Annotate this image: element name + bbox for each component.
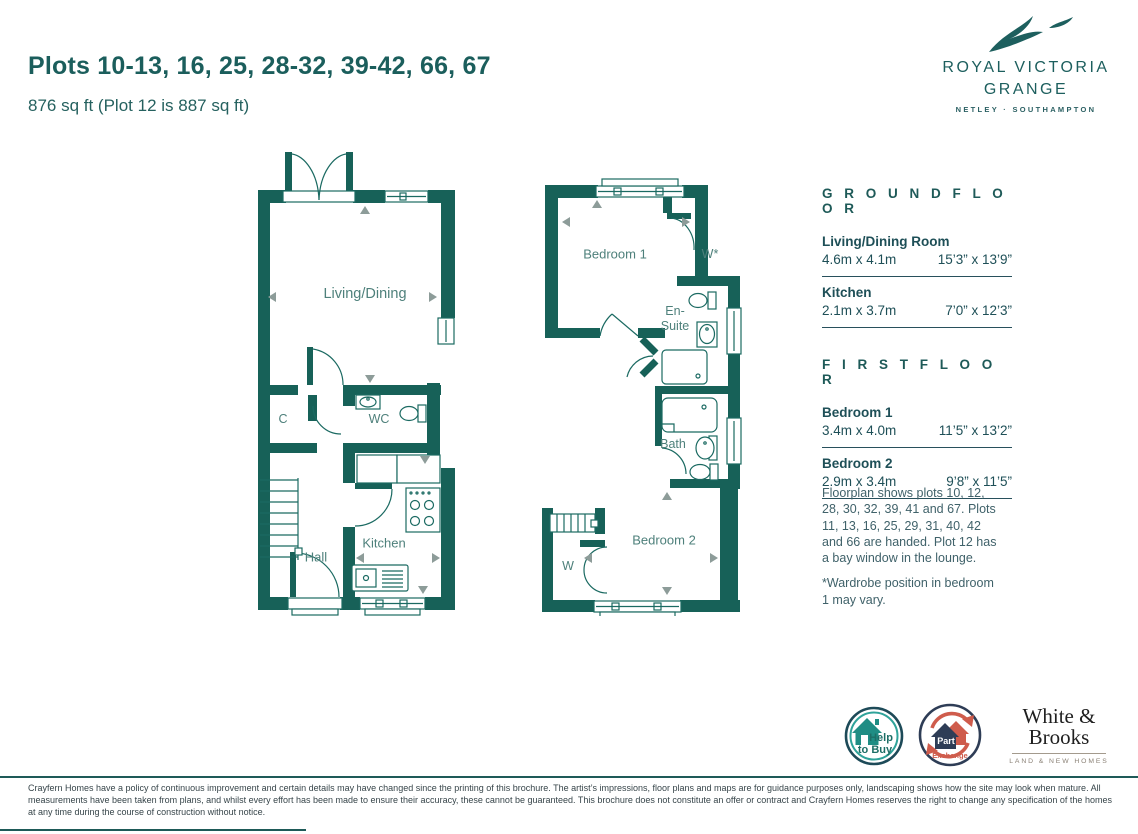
room-imperial: 15’3” x 13’9” <box>938 252 1012 267</box>
page-subtitle: 876 sq ft (Plot 12 is 887 sq ft) <box>28 96 249 116</box>
room-label-bath: Bath <box>660 437 686 451</box>
first-floor-table: F I R S T F L O O R Bedroom 1 3.4m x 4.0… <box>822 357 1012 499</box>
agent-name-line2: Brooks <box>1004 727 1114 748</box>
room-label-wc: WC <box>369 412 390 426</box>
page-title: Plots 10-13, 16, 25, 28-32, 39-42, 66, 6… <box>28 52 491 81</box>
room-name: Bedroom 1 <box>822 405 1012 420</box>
footer-logos: Help to Buy Part Exchange White & Brooks… <box>844 702 1114 772</box>
table-row: Bedroom 1 3.4m x 4.0m 11’5” x 13’2” <box>822 397 1012 448</box>
ensuite-basin <box>697 322 717 347</box>
fixtures <box>260 154 454 615</box>
development-name-line2: GRANGE <box>938 80 1114 100</box>
kitchen-sink <box>352 565 408 591</box>
dimensions-panel: G R O U N D F L O O R Living/Dining Room… <box>822 186 1012 499</box>
svg-text:to Buy: to Buy <box>858 744 893 756</box>
ground-floor-plan-drawing <box>252 150 458 616</box>
wc-basin <box>356 395 380 409</box>
room-metric: 4.6m x 4.1m <box>822 252 896 267</box>
help-to-buy-logo: Help to Buy <box>844 705 904 767</box>
shower-tray <box>662 350 707 384</box>
fixtures <box>550 179 741 616</box>
room-label-wardrobe1: W* <box>702 247 719 261</box>
bath-basin <box>696 436 717 460</box>
stairs <box>550 514 598 532</box>
room-name: Living/Dining Room <box>822 234 1012 249</box>
room-label-bedroom2: Bedroom 2 <box>632 533 696 548</box>
room-label-wardrobe2: W <box>562 559 574 573</box>
agent-rule <box>1012 753 1106 754</box>
room-name: Kitchen <box>822 285 1012 300</box>
room-label-bedroom1: Bedroom 1 <box>583 247 647 262</box>
svg-text:Exchange: Exchange <box>932 751 967 760</box>
table-row: Kitchen 2.1m x 3.7m 7’0” x 12’3” <box>822 277 1012 328</box>
agent-logo: White & Brooks LAND & NEW HOMES <box>1004 706 1114 765</box>
ground-floor-table: G R O U N D F L O O R Living/Dining Room… <box>822 186 1012 328</box>
room-label-hall: Hall <box>305 550 327 565</box>
plan-note-handing: Floorplan shows plots 10, 12, 28, 30, 32… <box>822 485 1004 566</box>
footer-divider <box>0 776 1138 778</box>
birds-icon <box>951 12 1101 56</box>
room-label-living-dining: Living/Dining <box>323 286 406 302</box>
development-location: NETLEY · SOUTHAMPTON <box>938 105 1114 114</box>
development-name-line1: ROYAL VICTORIA <box>938 58 1114 78</box>
ground-floor-heading: G R O U N D F L O O R <box>822 186 1012 216</box>
development-logo: ROYAL VICTORIA GRANGE NETLEY · SOUTHAMPT… <box>938 12 1114 114</box>
kitchen-hob <box>406 488 440 532</box>
room-imperial: 7’0” x 12’3” <box>945 303 1012 318</box>
first-floor-plan-drawing <box>538 176 748 616</box>
room-name: Bedroom 2 <box>822 456 1012 471</box>
bath-toilet <box>690 464 718 480</box>
svg-text:Part: Part <box>937 736 955 746</box>
bathtub <box>662 398 717 432</box>
ensuite-toilet <box>689 292 716 309</box>
room-imperial: 11’5” x 13’2” <box>939 423 1012 438</box>
room-label-ensuite-line1: En- <box>665 304 684 318</box>
disclaimer-text: Crayfern Homes have a policy of continuo… <box>28 783 1114 819</box>
plan-note-wardrobe: *Wardrobe position in bedroom 1 may vary… <box>822 575 1004 608</box>
svg-text:Help: Help <box>869 732 893 744</box>
room-metric: 3.4m x 4.0m <box>822 423 896 438</box>
room-label-kitchen: Kitchen <box>362 536 405 551</box>
room-metric: 2.1m x 3.7m <box>822 303 896 318</box>
first-floor-heading: F I R S T F L O O R <box>822 357 1012 387</box>
agent-tagline: LAND & NEW HOMES <box>1004 758 1114 765</box>
room-label-ensuite-line2: Suite <box>661 319 690 333</box>
wc-toilet <box>400 405 426 422</box>
ground-floor-plan: Living/Dining C WC Hall Kitchen <box>252 150 458 616</box>
page-bottom-edge <box>0 829 306 831</box>
agent-name-line1: White & <box>1004 706 1114 727</box>
part-exchange-logo: Part Exchange <box>918 702 982 768</box>
plan-notes: Floorplan shows plots 10, 12, 28, 30, 32… <box>822 485 1004 617</box>
first-floor-plan: Bedroom 1 W* En- Suite Bath Bedroom 2 W <box>538 176 748 616</box>
room-label-cupboard: C <box>278 412 287 426</box>
table-row: Living/Dining Room 4.6m x 4.1m 15’3” x 1… <box>822 226 1012 277</box>
walls <box>258 152 455 610</box>
